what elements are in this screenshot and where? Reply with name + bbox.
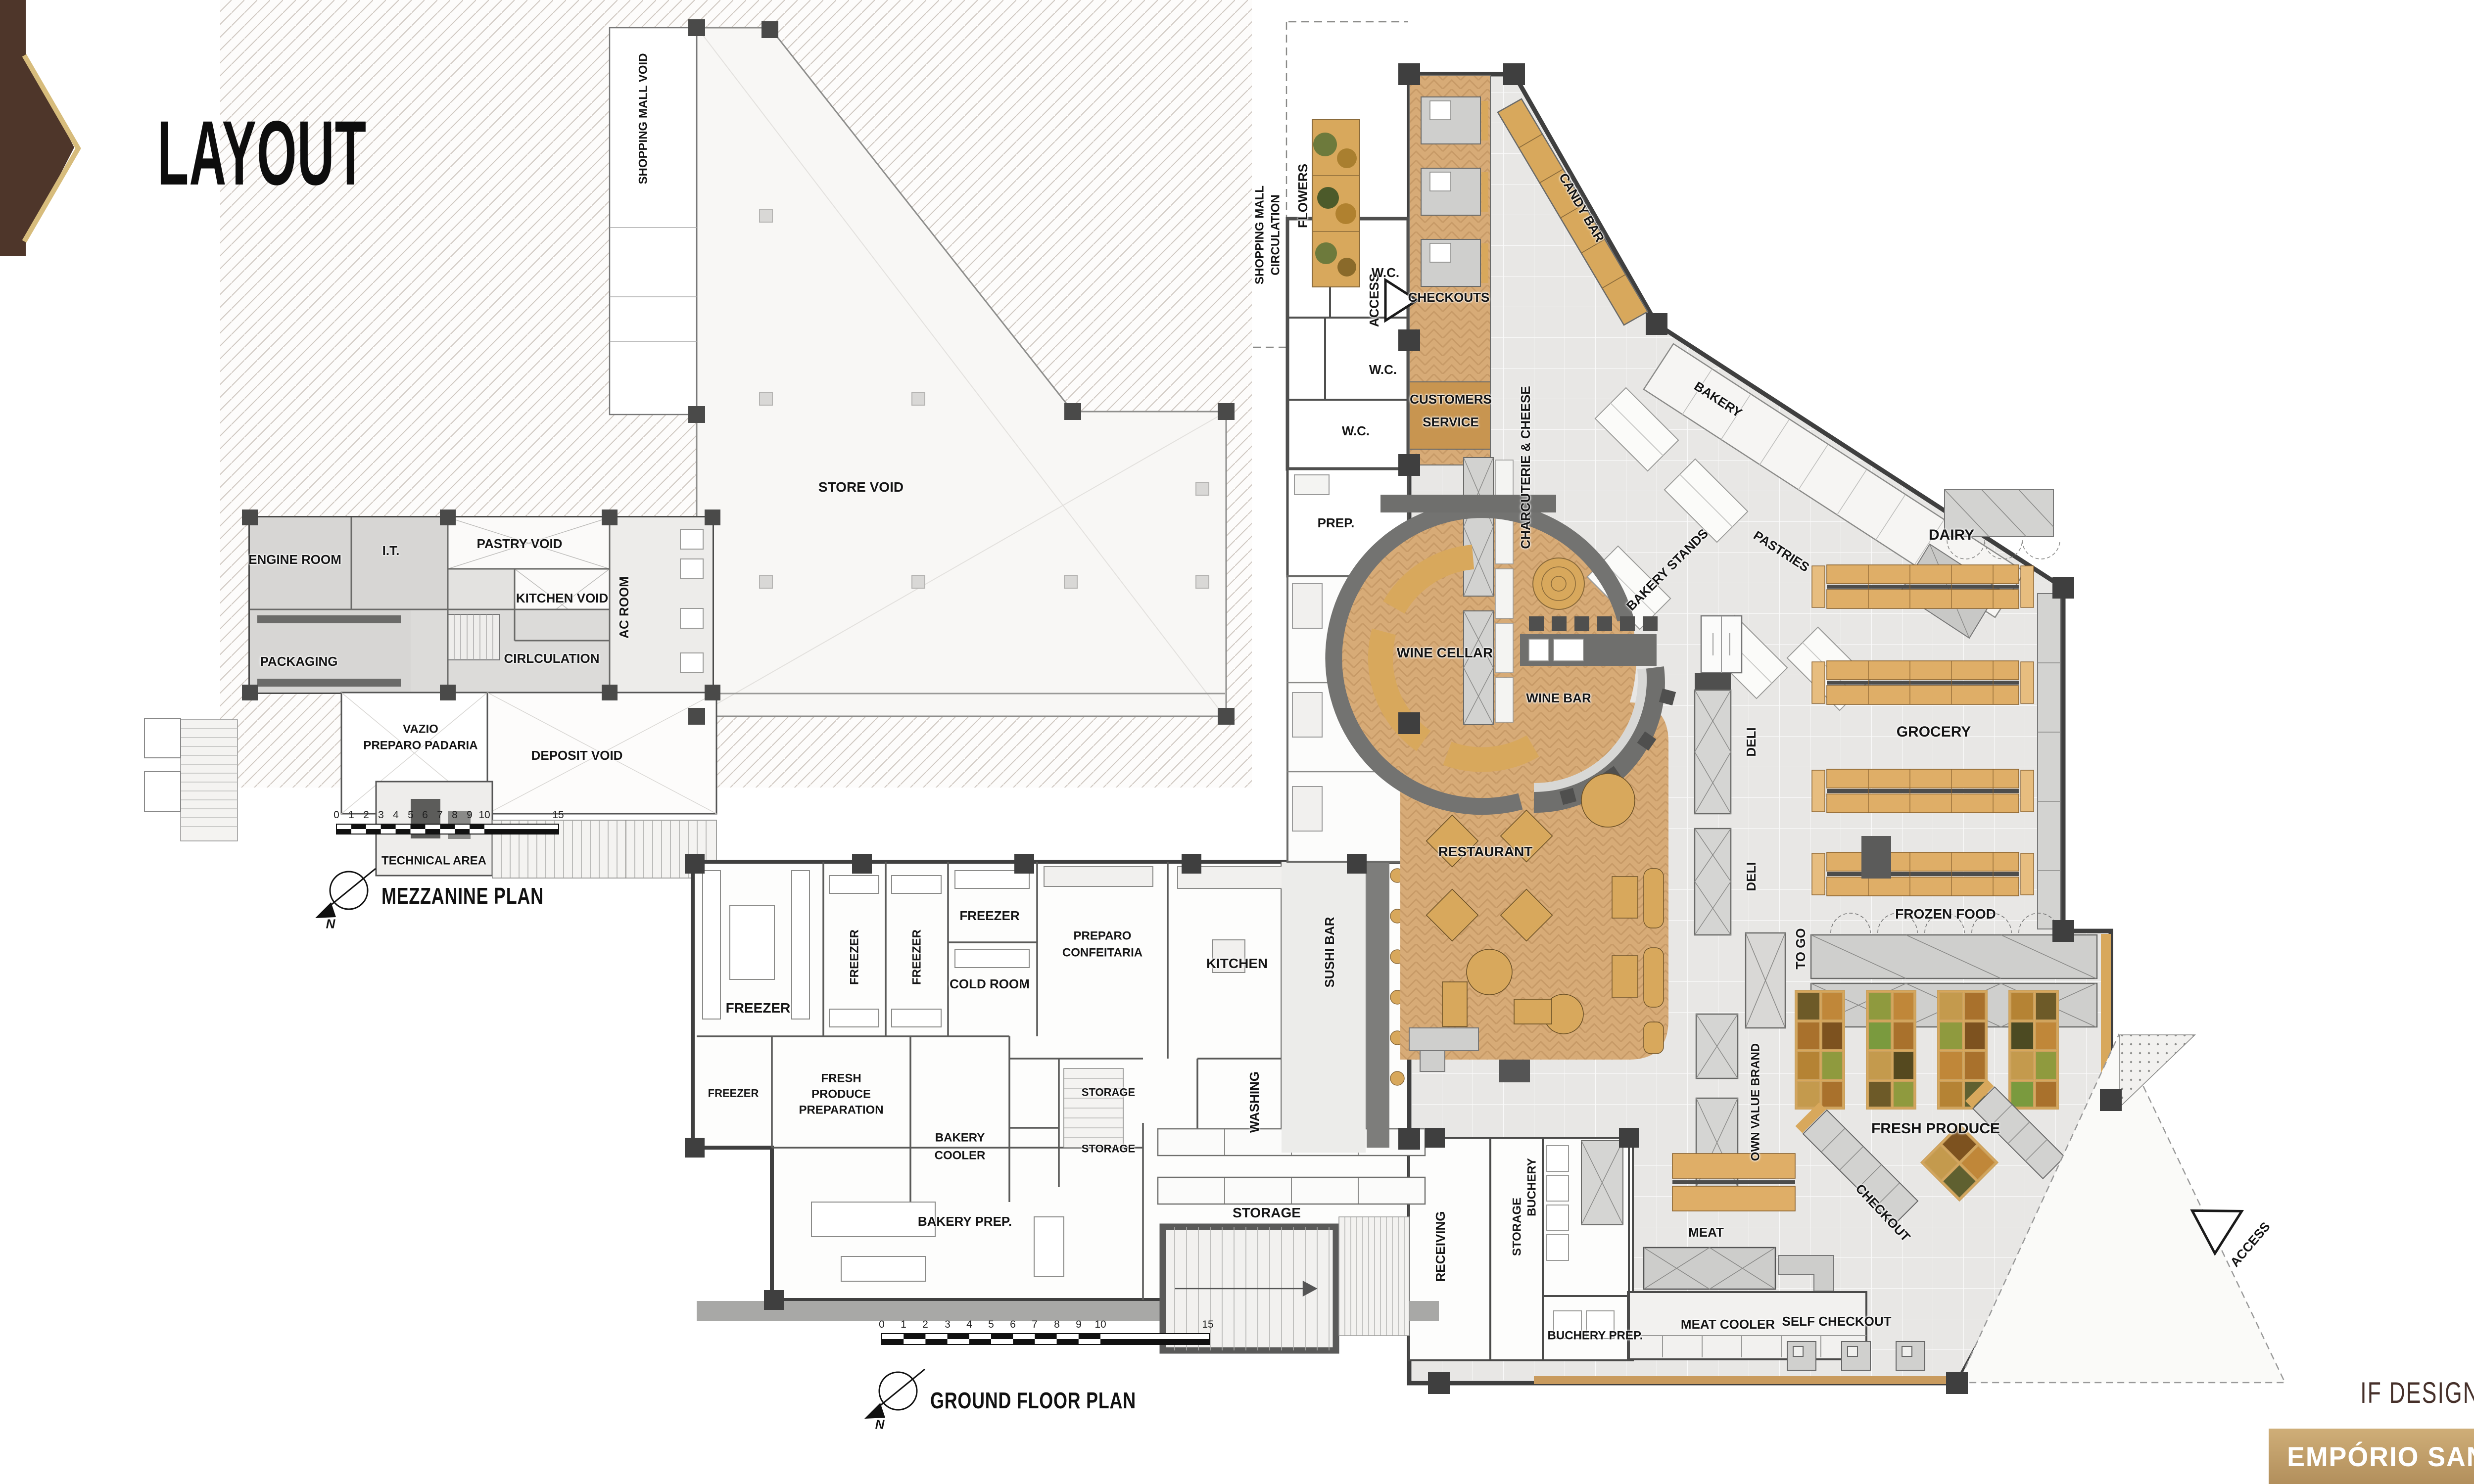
area-label-fpp-line3: PREPARATION <box>799 1104 883 1116</box>
area-label-fresh-produce: FRESH PRODUCE <box>1871 1121 2000 1137</box>
area-label-washing: WASHING <box>1248 1071 1262 1133</box>
area-label-wine-bar: WINE BAR <box>1526 692 1591 705</box>
scale-tick: 2 <box>922 1319 928 1331</box>
scale-tick: 10 <box>1094 1319 1106 1331</box>
area-label-wc-3: W.C. <box>1342 424 1370 438</box>
area-label-to-go: TO GO <box>1794 928 1808 969</box>
scale-tick: 7 <box>1032 1319 1038 1331</box>
area-label-access-bottom: ACCESS <box>2228 1220 2273 1270</box>
scale-tick: 9 <box>467 809 473 821</box>
scale-tick: 1 <box>348 809 354 821</box>
room-label-circulation: CIRLCULATION <box>504 652 599 666</box>
area-label-meat-cooler: MEAT COOLER <box>1681 1318 1775 1332</box>
area-label-buchery-prep: BUCHERY PREP. <box>1548 1329 1643 1342</box>
room-label-pastry-void: PASTRY VOID <box>477 537 563 551</box>
scale-tick: 1 <box>901 1319 906 1331</box>
area-label-preparo-line2: CONFEITARIA <box>1062 946 1142 959</box>
scale-tick: 10 <box>478 809 490 821</box>
scale-tick: 8 <box>452 809 458 821</box>
labels-layer: LAYOUT SHOPPING MALL VOID STORE VOID ENG… <box>0 0 2474 1484</box>
area-label-pastries: PASTRIES <box>1751 529 1811 575</box>
area-label-storage-small1: STORAGE <box>1082 1086 1135 1098</box>
scale-tick: 2 <box>363 809 369 821</box>
area-label-prep: PREP. <box>1318 516 1355 530</box>
scale-tick: 15 <box>1202 1319 1213 1331</box>
area-label-restaurant: RESTAURANT <box>1438 844 1533 859</box>
scale-tick: 3 <box>378 809 384 821</box>
area-label-cold-room: COLD ROOM <box>950 977 1030 991</box>
scale-tick: 8 <box>1054 1319 1060 1331</box>
area-label-fpp-line2: PRODUCE <box>811 1088 871 1100</box>
area-label-charcuterie-cheese: CHARCUTERIE & CHEESE <box>1519 386 1533 549</box>
room-label-ac-room: AC ROOM <box>618 576 631 639</box>
ground-floor-plan-title: GROUND FLOOR PLAN <box>930 1389 1136 1412</box>
area-label-wc-2: W.C. <box>1369 363 1397 377</box>
brand-name: EMPÓRIO SANTA MARIA <box>2287 1440 2474 1473</box>
room-label-it: I.T. <box>382 544 400 558</box>
scale-tick: 0 <box>333 809 339 821</box>
mezzanine-north-label: N <box>326 917 335 932</box>
area-label-buchery: BUCHERY <box>1525 1158 1538 1216</box>
area-label-kitchen: KITCHEN <box>1206 956 1268 971</box>
room-label-engine-room: ENGINE ROOM <box>248 553 341 567</box>
scale-tick: 6 <box>422 809 428 821</box>
mezzanine-plan-title: MEZZANINE PLAN <box>381 884 544 907</box>
area-label-preparo-line1: PREPARO <box>1074 929 1132 942</box>
area-label-storage-big: STORAGE <box>1233 1206 1301 1220</box>
area-label-deli-2: DELI <box>1745 862 1759 891</box>
slide-canvas: LAYOUT SHOPPING MALL VOID STORE VOID ENG… <box>0 0 2474 1484</box>
area-label-bakery-cooler-line2: COOLER <box>935 1149 986 1161</box>
area-label-candy-bar: CANDY BAR <box>1556 171 1607 244</box>
area-label-bakery: BAKERY <box>1692 379 1744 420</box>
room-label-vazio-line2: PREPARO PADARIA <box>363 739 477 751</box>
area-label-freezer-top: FREEZER <box>959 909 1019 923</box>
area-label-checkout: CHECKOUT <box>1853 1182 1913 1245</box>
scale-tick: 0 <box>879 1319 885 1331</box>
area-label-customers-service-line1: CUSTOMERS <box>1410 393 1492 407</box>
area-label-bakery-cooler-line1: BAKERY <box>935 1131 985 1144</box>
area-label-dairy: DAIRY <box>1929 527 1974 543</box>
room-label-deposit-void: DEPOSIT VOID <box>531 749 623 763</box>
scale-tick: 4 <box>393 809 399 821</box>
area-label-fpp-line1: FRESH <box>821 1072 861 1084</box>
area-label-storage-small2: STORAGE <box>1082 1143 1135 1154</box>
scale-tick: 7 <box>437 809 443 821</box>
scale-tick: 3 <box>945 1319 951 1331</box>
area-label-customers-service-line2: SERVICE <box>1423 416 1479 429</box>
ground-north-label: N <box>875 1417 885 1433</box>
area-label-freezer-v1: FREEZER <box>848 929 860 985</box>
scale-tick: 9 <box>1076 1319 1082 1331</box>
page-title: LAYOUT <box>157 108 367 199</box>
scale-tick: 15 <box>552 809 564 821</box>
area-label-receiving: RECEIVING <box>1434 1211 1448 1282</box>
area-label-grocery: GROCERY <box>1897 724 1971 740</box>
scale-tick: 5 <box>408 809 414 821</box>
area-label-deli-1: DELI <box>1745 727 1759 756</box>
area-label-checkouts: CHECKOUTS <box>1408 291 1490 305</box>
area-label-bakery-stands: BAKERY STANDS <box>1624 526 1711 613</box>
area-label-freezer-row2: FREEZER <box>708 1087 759 1099</box>
area-label-freezer-v2: FREEZER <box>910 929 923 985</box>
room-label-packaging: PACKAGING <box>260 655 338 669</box>
room-label-shopping-mall-void: SHOPPING MALL VOID <box>637 53 649 185</box>
room-label-technical-area: TECHNICAL AREA <box>381 854 486 867</box>
scale-tick: 6 <box>1010 1319 1016 1331</box>
area-label-flowers: FLOWERS <box>1296 164 1310 228</box>
scale-tick: 5 <box>988 1319 994 1331</box>
area-label-shopping-mall-line1: SHOPPING MALL <box>1253 185 1266 284</box>
area-label-frozen-food: FROZEN FOOD <box>1895 907 1996 922</box>
room-label-store-void: STORE VOID <box>818 480 904 495</box>
award-text: IF DESIGN AWARD 2023 <box>2360 1378 2474 1408</box>
brand-band: EMPÓRIO SANTA MARIA <box>2269 1429 2474 1484</box>
area-label-freezer-big: FREEZER <box>726 1001 791 1016</box>
scale-tick: 4 <box>966 1319 972 1331</box>
area-label-wc-1: W.C. <box>1372 266 1399 280</box>
area-label-wine-cellar: WINE CELLAR <box>1397 646 1493 660</box>
room-label-kitchen-void: KITCHEN VOID <box>516 592 608 605</box>
area-label-shopping-mall-line2: CIRCULATION <box>1269 194 1282 276</box>
area-label-meat: MEAT <box>1688 1226 1724 1240</box>
area-label-self-checkout: SELF CHECKOUT <box>1782 1315 1892 1329</box>
area-label-access-top: ACCESS <box>1368 274 1381 327</box>
area-label-own-value-brand: OWN VALUE BRAND <box>1749 1043 1761 1161</box>
area-label-bakery-prep: BAKERY PREP. <box>918 1215 1012 1229</box>
area-label-storage-corridor: STORAGE <box>1511 1198 1523 1256</box>
room-label-vazio-line1: VAZIO <box>403 723 438 735</box>
area-label-sushi-bar: SUSHI BAR <box>1323 917 1337 987</box>
